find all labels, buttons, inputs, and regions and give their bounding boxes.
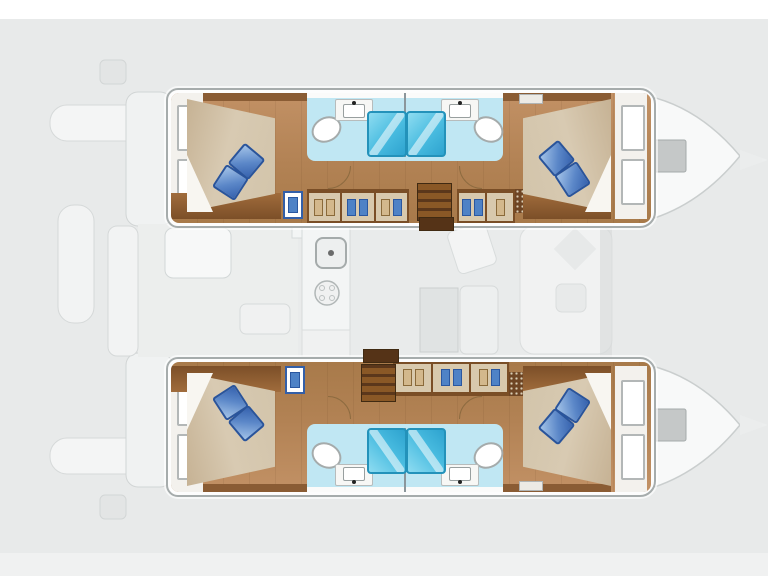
hanging-shirt	[314, 199, 323, 216]
hull-window	[621, 159, 645, 205]
hanging-shirt	[381, 199, 390, 216]
companionway-steps	[361, 364, 396, 402]
sofa	[460, 286, 498, 354]
cockpit-table	[165, 228, 231, 278]
wardrobe-cell	[459, 193, 487, 221]
wardrobe-cell	[487, 193, 513, 221]
wardrobe-cell	[309, 193, 342, 221]
shower-stall	[406, 428, 446, 474]
companionway-steps	[417, 183, 452, 221]
stove	[315, 281, 339, 305]
shower-stall	[406, 111, 446, 157]
hanging-shirt-blue	[474, 199, 483, 216]
hull-wood-floor	[171, 362, 651, 492]
aft-bench-seat	[108, 226, 138, 356]
sink	[449, 104, 471, 118]
hanging-shirt	[415, 370, 424, 387]
companionway-steps-extension	[363, 349, 399, 363]
tender-platform	[58, 205, 94, 323]
deck-hatch	[519, 481, 543, 491]
bowsprit-port	[740, 150, 768, 170]
sink	[343, 104, 365, 118]
hull-window	[621, 105, 645, 151]
galley-sink-drain	[328, 250, 334, 256]
winch-port	[100, 60, 126, 84]
blue-locker	[283, 191, 303, 219]
bowsprit-starboard	[740, 415, 768, 435]
hanging-shirt	[496, 199, 505, 216]
faucet	[352, 480, 356, 484]
wardrobe	[307, 189, 409, 223]
faucet	[458, 101, 462, 105]
shower-stall	[367, 428, 407, 474]
faucet	[458, 480, 462, 484]
mast-beam	[600, 224, 612, 357]
sink	[449, 467, 471, 481]
starboard-hull	[166, 357, 656, 497]
companionway-steps-extension	[419, 217, 454, 231]
hanging-shirt-blue	[359, 199, 368, 216]
sink-counter	[441, 464, 479, 486]
hanging-shirt-blue	[347, 199, 356, 216]
bow-hatch-port	[652, 140, 686, 172]
deck-hatch	[519, 94, 543, 104]
hanging-shirt-blue	[491, 370, 500, 387]
wardrobe	[393, 362, 509, 396]
hull-wood-floor	[171, 93, 651, 223]
bow-hatch-starboard	[652, 409, 686, 441]
cockpit-seat	[240, 304, 290, 334]
wardrobe	[457, 189, 515, 223]
hanging-shirt	[403, 370, 412, 387]
small-seat	[556, 284, 586, 312]
hanging-towel	[290, 372, 300, 388]
wardrobe-cell	[376, 193, 407, 221]
shower-stall	[367, 111, 407, 157]
hanging-shirt	[326, 199, 335, 216]
wardrobe-cell	[342, 193, 375, 221]
hanging-shirt-blue	[453, 370, 462, 387]
winch-starboard	[100, 495, 126, 519]
wardrobe-cell	[471, 364, 507, 392]
galley-lower-cabinet	[302, 330, 350, 357]
hanging-shirt	[479, 370, 488, 387]
wardrobe-cell	[433, 364, 471, 392]
hanging-shirt-blue	[393, 199, 402, 216]
port-hull	[166, 88, 656, 228]
wardrobe-cell	[395, 364, 433, 392]
floorplan-canvas	[0, 0, 768, 576]
hanging-towel	[288, 197, 298, 213]
sink-counter	[441, 99, 479, 121]
hull-window	[621, 380, 645, 426]
sink	[343, 467, 365, 481]
hanging-shirt-blue	[441, 370, 450, 387]
dining-table	[420, 288, 458, 352]
faucet	[352, 101, 356, 105]
blue-locker	[285, 366, 305, 394]
hanging-shirt-blue	[462, 199, 471, 216]
hull-window	[621, 434, 645, 480]
